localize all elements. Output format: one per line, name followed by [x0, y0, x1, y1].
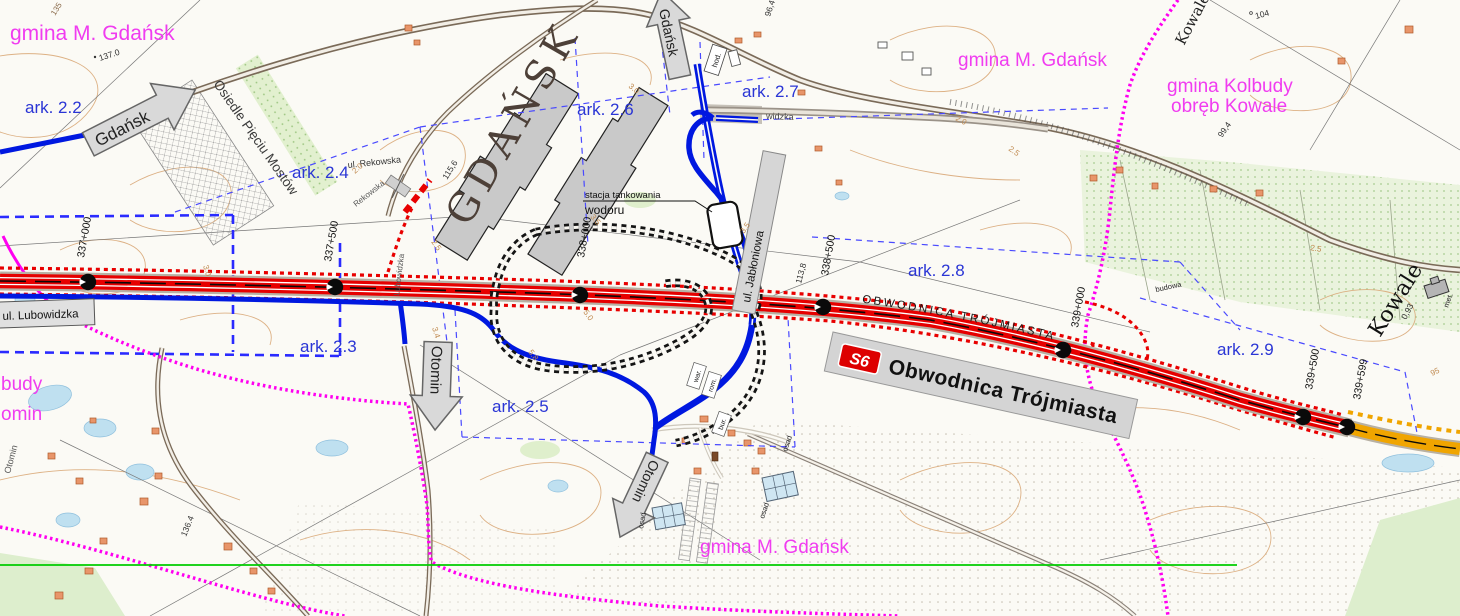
admin-label-kolbudy-2: obręb Kowale [1171, 96, 1287, 117]
sheet-label-2-6: ark. 2.6 [577, 100, 634, 119]
arrow-label: Otomin [426, 346, 445, 395]
admin-label-nw: gmina M. Gdańsk [10, 22, 175, 45]
street-fragment-widzka: widzka [765, 111, 794, 122]
admin-label-kolbudy-1: gmina Kolbudy [1167, 76, 1293, 97]
sheet-label-2-7: ark. 2.7 [742, 82, 799, 101]
street-box-lubowidzka: ul. Lubowidzka [0, 299, 95, 328]
admin-label-west-frag1: budy [1, 374, 43, 395]
sheet-label-2-8: ark. 2.8 [908, 261, 965, 280]
poi-label-line2: wodoru [584, 203, 624, 217]
topographic-plan-map: Gdańsk Gdańsk Otomin Otomin ul. Lubowidz… [0, 0, 1460, 616]
map-canvas: Gdańsk Gdańsk Otomin Otomin ul. Lubowidz… [0, 0, 1460, 616]
sheet-label-2-5: ark. 2.5 [492, 397, 549, 416]
sheet-label-2-2: ark. 2.2 [25, 98, 82, 117]
sheet-label-2-3: ark. 2.3 [300, 337, 357, 356]
poi-label-line1: stacja tankowania [585, 190, 661, 201]
admin-label-south: gmina M. Gdańsk [700, 537, 849, 558]
sheet-label-2-4: ark. 2.4 [292, 163, 349, 182]
admin-label-west-frag2: omin [1, 404, 42, 425]
admin-label-ne: gmina M. Gdańsk [958, 50, 1107, 71]
sheet-label-2-9: ark. 2.9 [1217, 340, 1274, 359]
